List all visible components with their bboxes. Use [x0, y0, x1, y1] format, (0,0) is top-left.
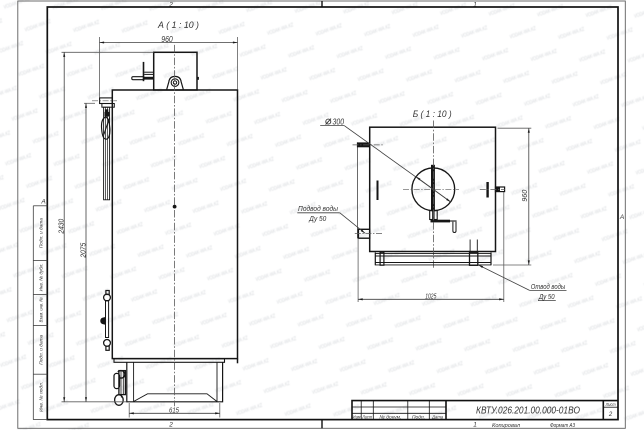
svg-text:Отвод воды: Отвод воды: [531, 282, 566, 291]
svg-text:Копировал: Копировал: [492, 423, 520, 429]
svg-text:Подп. и дата: Подп. и дата: [39, 334, 44, 364]
svg-text:2: 2: [168, 1, 173, 8]
svg-text:615: 615: [169, 407, 179, 414]
svg-text:Подп.: Подп.: [412, 414, 425, 420]
svg-text:Подп. и дата: Подп. и дата: [39, 218, 44, 248]
svg-text:2430: 2430: [57, 219, 65, 235]
svg-text:Ду 50: Ду 50: [538, 294, 555, 302]
svg-text:1: 1: [473, 1, 477, 8]
svg-text:Взам. инв. №: Взам. инв. №: [39, 297, 44, 322]
svg-text:Б ( 1 : 10 ): Б ( 1 : 10 ): [413, 109, 452, 120]
svg-text:А ( 1 : 10 ): А ( 1 : 10 ): [157, 20, 199, 30]
svg-text:Дата: Дата: [431, 414, 443, 420]
svg-text:2: 2: [608, 412, 613, 418]
svg-text:1025: 1025: [425, 294, 437, 301]
svg-text:960: 960: [161, 34, 173, 44]
svg-text:А: А: [619, 214, 624, 221]
svg-text:Ду 50: Ду 50: [308, 216, 326, 223]
svg-text:1: 1: [473, 422, 477, 429]
svg-text:Изм: Изм: [353, 414, 362, 420]
svg-text:А: А: [40, 199, 45, 206]
svg-text:№ докум.: № докум.: [380, 414, 402, 420]
svg-text:Лист: Лист: [605, 402, 616, 408]
svg-text:Подвод воды: Подвод воды: [298, 205, 338, 213]
svg-text:2075: 2075: [79, 243, 87, 259]
svg-text:Лист: Лист: [361, 414, 372, 420]
svg-text:960: 960: [520, 190, 529, 202]
svg-text:Формат А3: Формат А3: [550, 423, 575, 429]
svg-text:Инв. № дубл.: Инв. № дубл.: [39, 263, 44, 291]
svg-text:Инв. № подл.: Инв. № подл.: [39, 382, 44, 412]
svg-text:КВТУ.026.201.00.000-01ВО: КВТУ.026.201.00.000-01ВО: [476, 405, 580, 416]
svg-text:2: 2: [168, 422, 173, 429]
